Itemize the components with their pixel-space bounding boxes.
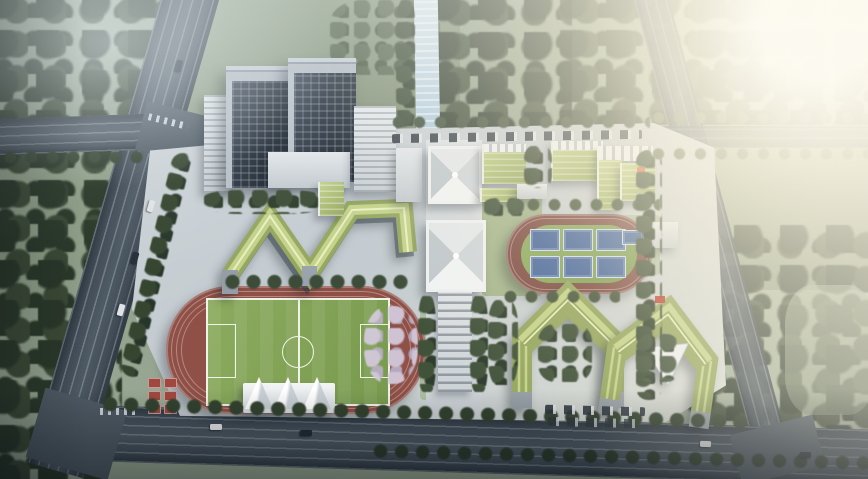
axis-hall-north	[428, 146, 482, 204]
car	[700, 441, 711, 447]
forest-top-right	[560, 0, 868, 125]
trees-lab-courtyard	[524, 146, 552, 188]
stand-block	[148, 378, 161, 388]
stand-block	[164, 378, 177, 388]
lab-slab-b	[551, 141, 603, 181]
rooftop-solar-strip	[553, 141, 603, 150]
rooftop-solar-strip	[484, 144, 526, 152]
campus-aerial-rendering: zigzag teaching building with green roof…	[0, 0, 868, 479]
basketball-court	[563, 256, 593, 278]
trees-axis-sides	[418, 296, 436, 392]
pitch-center-circle	[282, 336, 314, 368]
trees-small-track-south	[500, 290, 620, 305]
dorm-west-courtyard-trees	[538, 324, 592, 382]
trees-dorm-gap	[488, 300, 518, 385]
blossom-grove	[364, 306, 418, 384]
trees-right-road	[648, 112, 868, 125]
penalty-box-west	[206, 324, 236, 378]
clearing-right	[785, 285, 868, 415]
gray-slab-building	[396, 148, 422, 202]
car	[800, 452, 811, 458]
axis-colonnade	[438, 292, 472, 392]
axis-hall-south	[426, 220, 486, 292]
trees-dorm-east-court	[636, 334, 680, 382]
basketball-court	[596, 256, 626, 278]
trees-zigzag-south	[222, 272, 412, 294]
car	[210, 424, 222, 430]
trees-stream-bank	[396, 0, 416, 130]
trees-right-road	[648, 148, 868, 161]
trees-top-left-road	[0, 150, 150, 166]
car	[300, 430, 312, 436]
trees-towers-base	[204, 190, 324, 214]
trees-axis-sides	[470, 296, 488, 392]
lab-slab-a	[482, 144, 526, 184]
basketball-court	[530, 256, 560, 278]
basketball-court	[563, 229, 593, 251]
trees-north-road	[388, 116, 650, 130]
basketball-court	[530, 229, 560, 251]
